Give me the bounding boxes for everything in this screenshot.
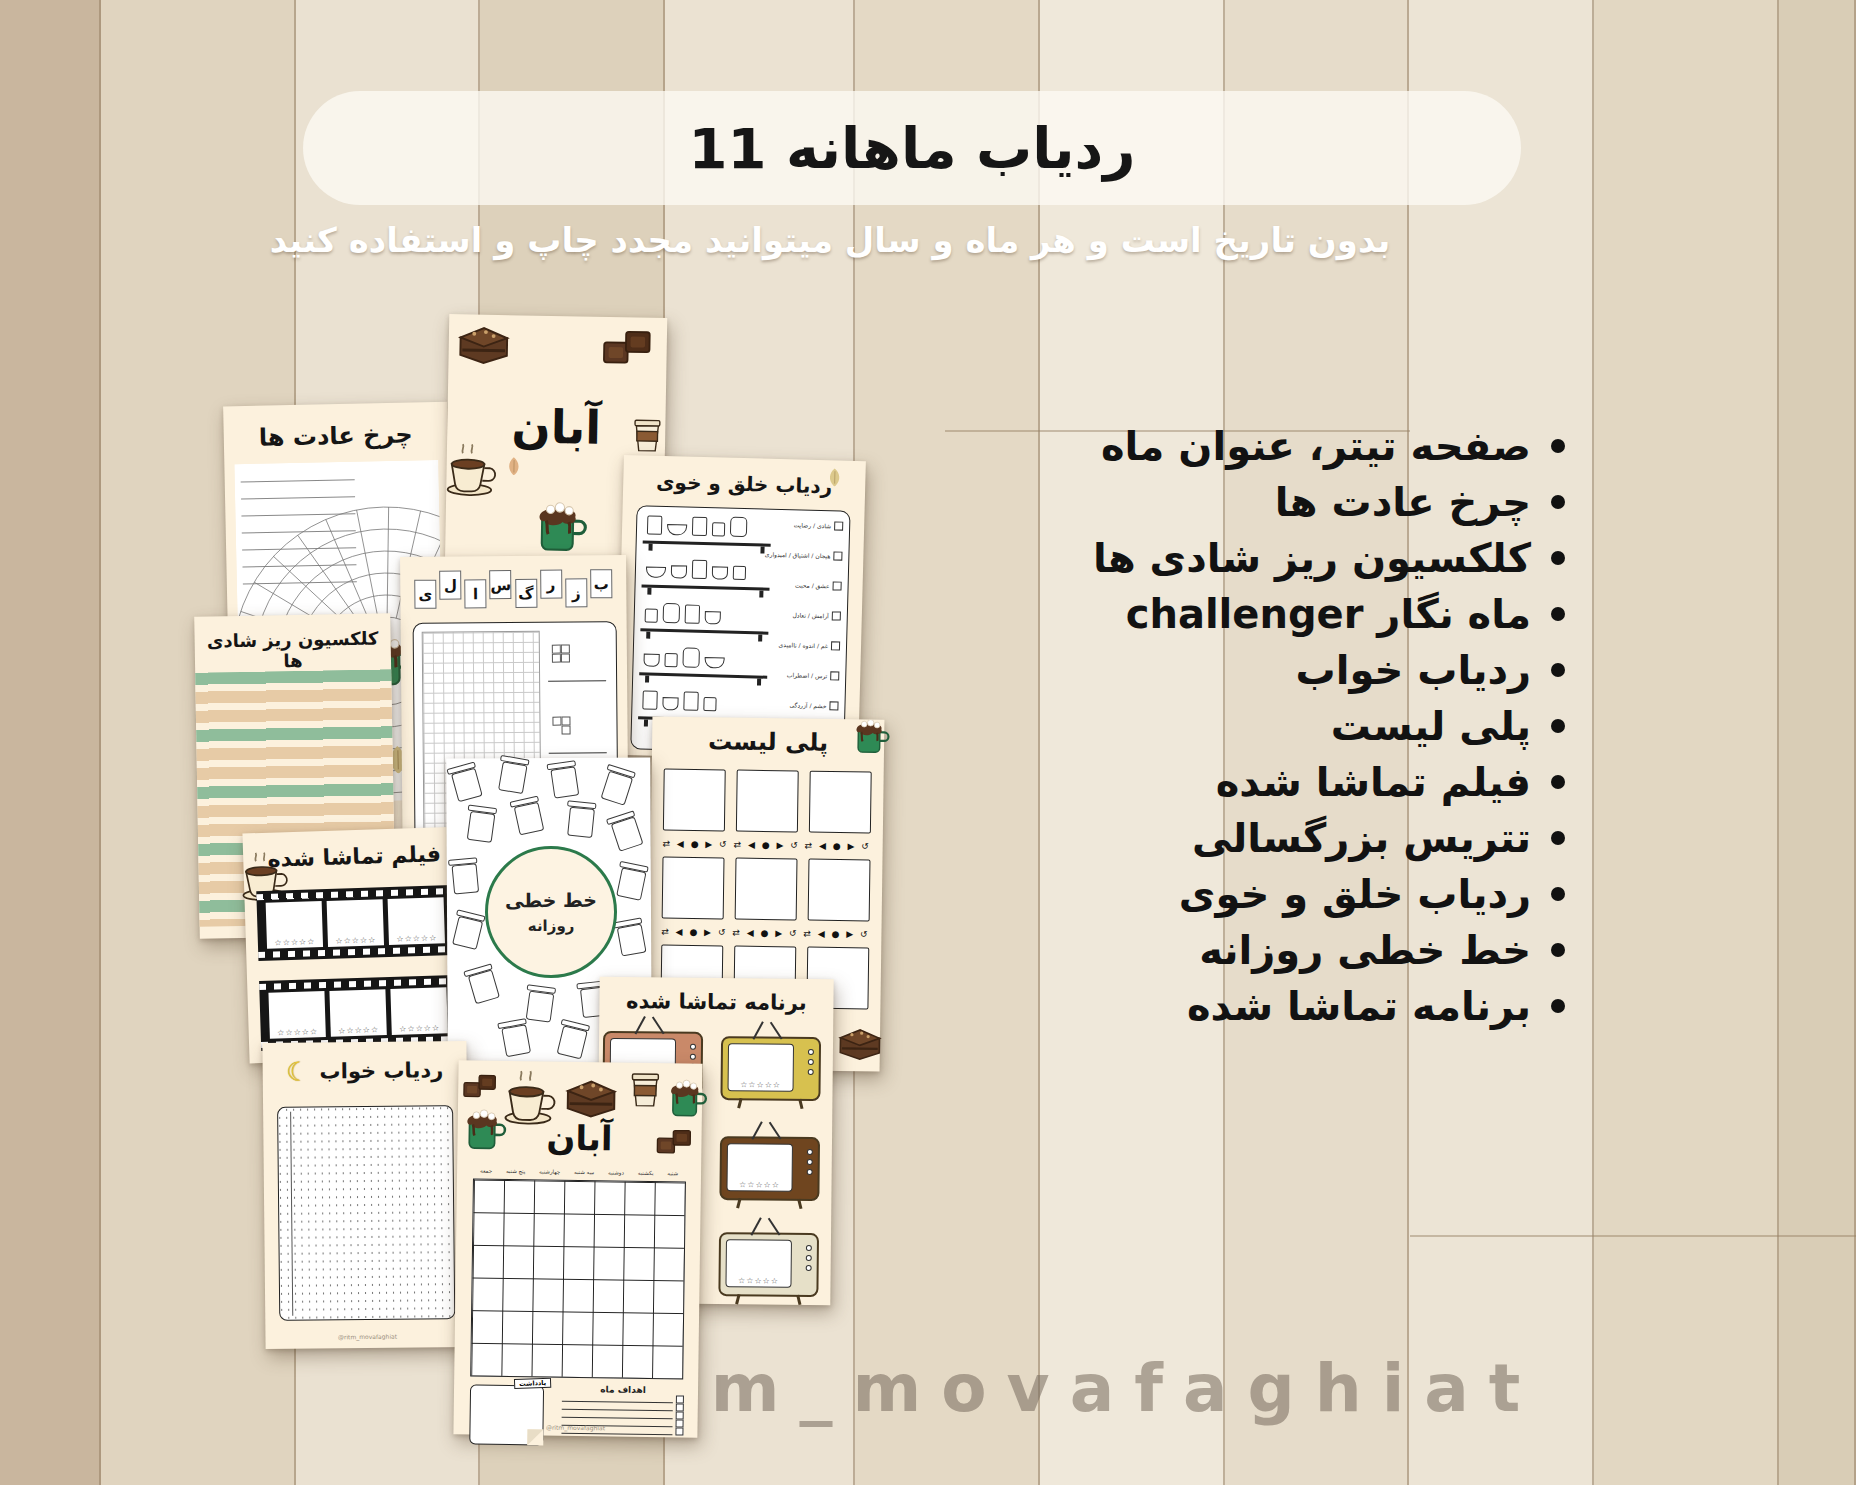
tetris-letter-boxes: ب ز ر گ س ا ل ی xyxy=(414,569,612,600)
cup-icon xyxy=(611,816,644,851)
checkbox-icon xyxy=(676,1395,684,1403)
bowl-icon xyxy=(667,524,687,536)
film-frame: ☆☆☆☆☆ xyxy=(268,991,325,1039)
player-controls-icons: ⇄ ◀ ● ▶ ↺ ⇄ ◀ ● ▶ ↺ ⇄ ◀ ● ▶ ↺ xyxy=(661,839,873,852)
cup-icon xyxy=(712,566,728,579)
mood-option: عشق / محبت xyxy=(795,580,842,590)
letter-box: س xyxy=(490,570,512,599)
cup-icon xyxy=(451,768,483,803)
star-rating-icons: ☆☆☆☆☆ xyxy=(331,1025,387,1036)
star-rating-icons: ☆☆☆☆☆ xyxy=(729,1080,793,1090)
shelf xyxy=(640,628,768,634)
list-item: فیلم تماشا شده xyxy=(1093,754,1565,810)
mug-icon xyxy=(733,566,746,580)
checkbox-icon xyxy=(676,1403,684,1411)
shelf xyxy=(643,540,771,546)
bowl-icon xyxy=(704,657,724,669)
cup-icon xyxy=(616,867,646,900)
antenna-icon xyxy=(752,1021,763,1040)
letter-box: ب xyxy=(590,569,612,598)
cup-icon xyxy=(567,807,595,838)
checkbox-icon xyxy=(834,521,843,530)
weekday-label: پنج شنبه xyxy=(506,1168,525,1174)
shelf-items xyxy=(643,646,724,668)
film-frame: ☆☆☆☆☆ xyxy=(329,989,386,1037)
answer-line xyxy=(548,680,606,682)
page-watermark: @ritm_movafaghiat xyxy=(265,1332,469,1341)
coffee-cup-icon xyxy=(442,442,501,501)
weekday-label: یکشنبه xyxy=(638,1170,654,1176)
feature-label: صفحه تیتر، عنوان ماه xyxy=(1101,423,1531,469)
cup-icon xyxy=(647,516,662,535)
letter-box: ز xyxy=(565,578,587,607)
feature-label: تتریس بزرگسالی xyxy=(1192,815,1531,861)
star-rating-icons: ☆☆☆☆☆ xyxy=(392,1023,448,1034)
star-rating-icons: ☆☆☆☆☆ xyxy=(328,935,384,946)
shelf xyxy=(639,672,767,678)
doodle-title-line1: خط خطی xyxy=(505,889,597,911)
bullet-icon xyxy=(1551,495,1565,509)
grid-axis-line xyxy=(290,1112,293,1316)
mug-icon xyxy=(664,653,677,667)
feature-label: چرخ عادت ها xyxy=(1275,479,1531,525)
antenna-icon xyxy=(635,1016,646,1035)
bullet-icon xyxy=(1551,831,1565,845)
mood-option: ترس / اضطراب xyxy=(787,670,840,680)
cup-icon xyxy=(683,692,698,711)
feature-label: ردیاب خلق و خوی xyxy=(1179,871,1531,917)
notes-sticky: یادداشت xyxy=(469,1385,544,1446)
list-item: ردیاب خواب xyxy=(1093,642,1565,698)
cup-icon xyxy=(705,611,721,624)
shelf-items xyxy=(642,690,716,711)
tv-screen: ☆☆☆☆☆ xyxy=(725,1239,791,1288)
doodle-title-line2: روزانه xyxy=(528,917,575,935)
wood-plank xyxy=(1594,0,1779,1485)
checkbox-icon xyxy=(832,611,841,620)
feature-list: صفحه تیتر، عنوان ماه چرخ عادت ها کلکسیون… xyxy=(1093,418,1565,1034)
cup-icon xyxy=(642,690,657,709)
star-rating-icons: ☆☆☆☆☆ xyxy=(727,1180,791,1190)
shelf-items xyxy=(645,602,721,624)
antenna-icon xyxy=(768,1218,781,1236)
goal-line xyxy=(562,1394,684,1404)
weekday-label: سه شنبه xyxy=(574,1169,594,1175)
album-frame xyxy=(662,857,725,920)
cup-icon xyxy=(557,1025,588,1059)
cup-icon xyxy=(601,771,634,806)
bullet-icon xyxy=(1551,607,1565,621)
antenna-icon xyxy=(769,1122,782,1140)
cup-icon xyxy=(643,653,659,666)
letter-box: ر xyxy=(540,570,562,599)
checkbox-icon xyxy=(832,581,841,590)
bullet-icon xyxy=(1551,887,1565,901)
bullet-icon xyxy=(1551,775,1565,789)
cup-icon xyxy=(685,605,700,624)
cocoa-mug-icon xyxy=(662,1073,713,1124)
mood-label: ترس / اضطراب xyxy=(787,671,828,679)
tv-knobs xyxy=(807,1149,813,1175)
tv-icon: ☆☆☆☆☆ xyxy=(718,1232,819,1297)
cup-icon xyxy=(526,991,555,1023)
list-item: کلکسیون ریز شادی ها xyxy=(1093,530,1565,586)
movies-title: فیلم تماشا شده xyxy=(243,841,466,873)
checkbox-icon xyxy=(676,1411,684,1419)
wood-plank xyxy=(0,0,101,1485)
chocolate-icon xyxy=(598,319,657,378)
tv-knobs xyxy=(808,1049,814,1075)
checkbox-icon xyxy=(830,671,839,680)
mood-label: آرامش / تعادل xyxy=(792,611,829,619)
cup-icon xyxy=(692,517,707,536)
mug-icon xyxy=(712,522,725,536)
poster-canvas: 11 ردیاب ماهانه بدون تاریخ است و هر ماه … xyxy=(0,0,1856,1485)
letter-box: ل xyxy=(439,570,461,599)
cup-icon xyxy=(498,761,528,794)
bullet-icon xyxy=(1551,439,1565,453)
mood-option: غم / اندوه / ناامیدی xyxy=(779,640,841,651)
antenna-icon xyxy=(770,1022,783,1040)
album-frame xyxy=(736,770,799,833)
mood-label: هیجان / اشتیاق / امیدواری xyxy=(765,551,831,560)
cup-icon xyxy=(468,969,500,1004)
checkbox-icon xyxy=(829,701,838,710)
mug-icon xyxy=(703,697,716,711)
weekday-label: چهارشنبه xyxy=(539,1168,560,1174)
cup-icon xyxy=(467,811,496,843)
tv-icon: ☆☆☆☆☆ xyxy=(719,1136,820,1201)
cup-icon xyxy=(662,697,678,710)
cocoa-mug-icon xyxy=(527,494,594,561)
notes-label: یادداشت xyxy=(514,1378,551,1389)
tetromino-icon xyxy=(552,716,579,734)
shelf xyxy=(642,584,770,590)
feature-label: ماه نگار challenger xyxy=(1126,591,1531,637)
page-habit-wheel-title: چرخ عادت ها xyxy=(224,420,449,453)
shelf-items xyxy=(646,559,746,581)
mood-label: خشم / آزردگی xyxy=(790,701,827,709)
doodle-center-label: خط خطی روزانه xyxy=(485,846,618,979)
list-item: برنامه تماشا شده xyxy=(1093,978,1565,1034)
calendar-month-title: آبان xyxy=(457,1116,702,1159)
list-item: ردیاب خلق و خوی xyxy=(1093,866,1565,922)
album-row xyxy=(662,857,871,922)
mug-icon xyxy=(645,608,658,622)
checkbox-icon xyxy=(831,641,840,650)
mood-label: غم / اندوه / ناامیدی xyxy=(779,641,829,649)
chocolate-icon xyxy=(460,1066,501,1107)
bullet-icon xyxy=(1551,999,1565,1013)
cup-icon xyxy=(514,802,545,836)
tv-leg xyxy=(797,1199,802,1209)
feature-label: فیلم تماشا شده xyxy=(1216,759,1531,805)
mood-option: آرامش / تعادل xyxy=(792,610,841,620)
feature-label: ردیاب خواب xyxy=(1295,647,1531,693)
star-rating-icons: ☆☆☆☆☆ xyxy=(267,937,323,948)
tv-leg xyxy=(737,1098,742,1108)
star-rating-icons: ☆☆☆☆☆ xyxy=(726,1276,790,1286)
album-frame xyxy=(735,858,798,921)
page-calendar: آبان شنبه یکشنبه دوشنبه سه شنبه چهارشنبه… xyxy=(453,1060,702,1437)
star-rating-icons: ☆☆☆☆☆ xyxy=(270,1027,326,1038)
letter-box: گ xyxy=(515,579,537,608)
list-item: خط خطی روزانه xyxy=(1093,922,1565,978)
bullet-icon xyxy=(1551,719,1565,733)
album-frame xyxy=(808,859,871,922)
list-item: تتریس بزرگسالی xyxy=(1093,810,1565,866)
leaf-icon xyxy=(502,455,524,477)
tv-screen: ☆☆☆☆☆ xyxy=(728,1043,794,1092)
title-banner: 11 ردیاب ماهانه xyxy=(303,91,1521,205)
bullet-icon xyxy=(1551,551,1565,565)
mood-label: شادی / رضایت xyxy=(794,521,832,529)
crescent-moon-icon: ☾ xyxy=(286,1057,310,1087)
page-mood-tracker: ردیاب خلق و خوی شادی / رضایت هیجان / اشت… xyxy=(616,455,866,761)
mood-label: عشق / محبت xyxy=(795,581,830,589)
page-sleep: ردیاب خواب ☾ @ritm_movafaghiat xyxy=(262,1041,469,1349)
weekday-label: جمعه xyxy=(480,1168,492,1174)
weekday-header: شنبه یکشنبه دوشنبه سه شنبه چهارشنبه پنج … xyxy=(473,1168,685,1177)
player-controls-icons: ⇄ ◀ ● ▶ ↺ ⇄ ◀ ● ▶ ↺ ⇄ ◀ ● ▶ ↺ xyxy=(659,927,871,940)
letter-box: ی xyxy=(414,580,436,609)
film-frame: ☆☆☆☆☆ xyxy=(327,899,384,947)
film-frame: ☆☆☆☆☆ xyxy=(388,897,445,945)
bowl-icon xyxy=(646,567,666,579)
chocolate-cake-icon xyxy=(834,1015,887,1068)
sleep-grid xyxy=(277,1105,455,1321)
star-rating-icons: ☆☆☆☆☆ xyxy=(389,933,445,944)
weekday-label: دوشنبه xyxy=(608,1169,624,1175)
page-title: 11 ردیاب ماهانه xyxy=(689,116,1136,181)
list-item: صفحه تیتر، عنوان ماه xyxy=(1093,418,1565,474)
feature-label: خط خطی روزانه xyxy=(1199,927,1531,973)
cup-icon xyxy=(501,1024,531,1057)
tetromino-icon xyxy=(552,644,579,662)
sleep-title: ردیاب خواب xyxy=(319,1058,443,1083)
album-row xyxy=(663,769,872,834)
mood-option: شادی / رضایت xyxy=(794,520,844,530)
album-frame xyxy=(663,769,726,832)
page-movies: فیلم تماشا شده ☆☆☆☆☆ ☆☆☆☆☆ ☆☆☆☆☆ ☆☆☆☆☆ ☆… xyxy=(242,827,471,1064)
jar-icon xyxy=(730,517,748,537)
bullet-icon xyxy=(1551,663,1565,677)
cup-icon xyxy=(617,924,647,957)
answer-line xyxy=(549,752,607,754)
film-strip: ☆☆☆☆☆ ☆☆☆☆☆ ☆☆☆☆☆ xyxy=(259,975,457,1051)
weekday-label: شنبه xyxy=(667,1170,678,1176)
tv-leg xyxy=(796,1295,801,1305)
letter-box: ا xyxy=(465,579,487,608)
film-strip: ☆☆☆☆☆ ☆☆☆☆☆ ☆☆☆☆☆ xyxy=(256,885,454,961)
bullet-icon xyxy=(1551,943,1565,957)
subtitle: بدون تاریخ است و هر ماه و سال میتوانید م… xyxy=(230,220,1430,260)
leaf-icon xyxy=(823,466,846,489)
jar-icon xyxy=(663,603,681,623)
tv-knobs xyxy=(806,1245,812,1271)
list-item: پلی لیست xyxy=(1093,698,1565,754)
calendar-grid xyxy=(470,1179,686,1380)
mood-option: خشم / آزردگی xyxy=(789,700,838,710)
tv-screen: ☆☆☆☆☆ xyxy=(726,1143,792,1192)
feature-label: پلی لیست xyxy=(1331,703,1531,749)
tv-leg xyxy=(735,1294,740,1304)
shelf-items xyxy=(647,515,747,538)
film-frame: ☆☆☆☆☆ xyxy=(266,901,323,949)
little-joys-title: کلکسیون ریز شادی ها xyxy=(194,627,391,672)
cocoa-mug-icon xyxy=(848,713,895,760)
antenna-icon xyxy=(750,1217,761,1236)
jar-icon xyxy=(682,647,700,667)
cup-icon xyxy=(452,916,483,950)
film-frame: ☆☆☆☆☆ xyxy=(390,987,447,1035)
chocolate-cake-icon xyxy=(452,310,515,373)
antenna-icon xyxy=(652,1017,665,1035)
tv-leg xyxy=(736,1198,741,1208)
list-item: چرخ عادت ها xyxy=(1093,474,1565,530)
cup-icon xyxy=(452,863,480,894)
checkbox-icon xyxy=(833,551,842,560)
write-line xyxy=(561,1433,672,1436)
feature-label: کلکسیون ریز شادی ها xyxy=(1093,535,1531,581)
cup-icon xyxy=(671,565,687,578)
wood-plank xyxy=(1779,0,1856,1485)
album-frame xyxy=(809,771,872,834)
tv-leg xyxy=(798,1099,803,1109)
cup-icon xyxy=(550,766,579,798)
feature-label: برنامه تماشا شده xyxy=(1187,983,1531,1029)
cup-icon xyxy=(692,560,707,579)
tv-icon: ☆☆☆☆☆ xyxy=(720,1036,821,1101)
wood-seam xyxy=(1410,1235,1856,1237)
list-item: ماه نگار challenger xyxy=(1093,586,1565,642)
mood-option: هیجان / اشتیاق / امیدواری xyxy=(765,550,843,561)
shows-title: برنامه تماشا شده xyxy=(599,989,833,1015)
antenna-icon xyxy=(751,1121,762,1140)
togo-cup-icon xyxy=(625,413,670,458)
